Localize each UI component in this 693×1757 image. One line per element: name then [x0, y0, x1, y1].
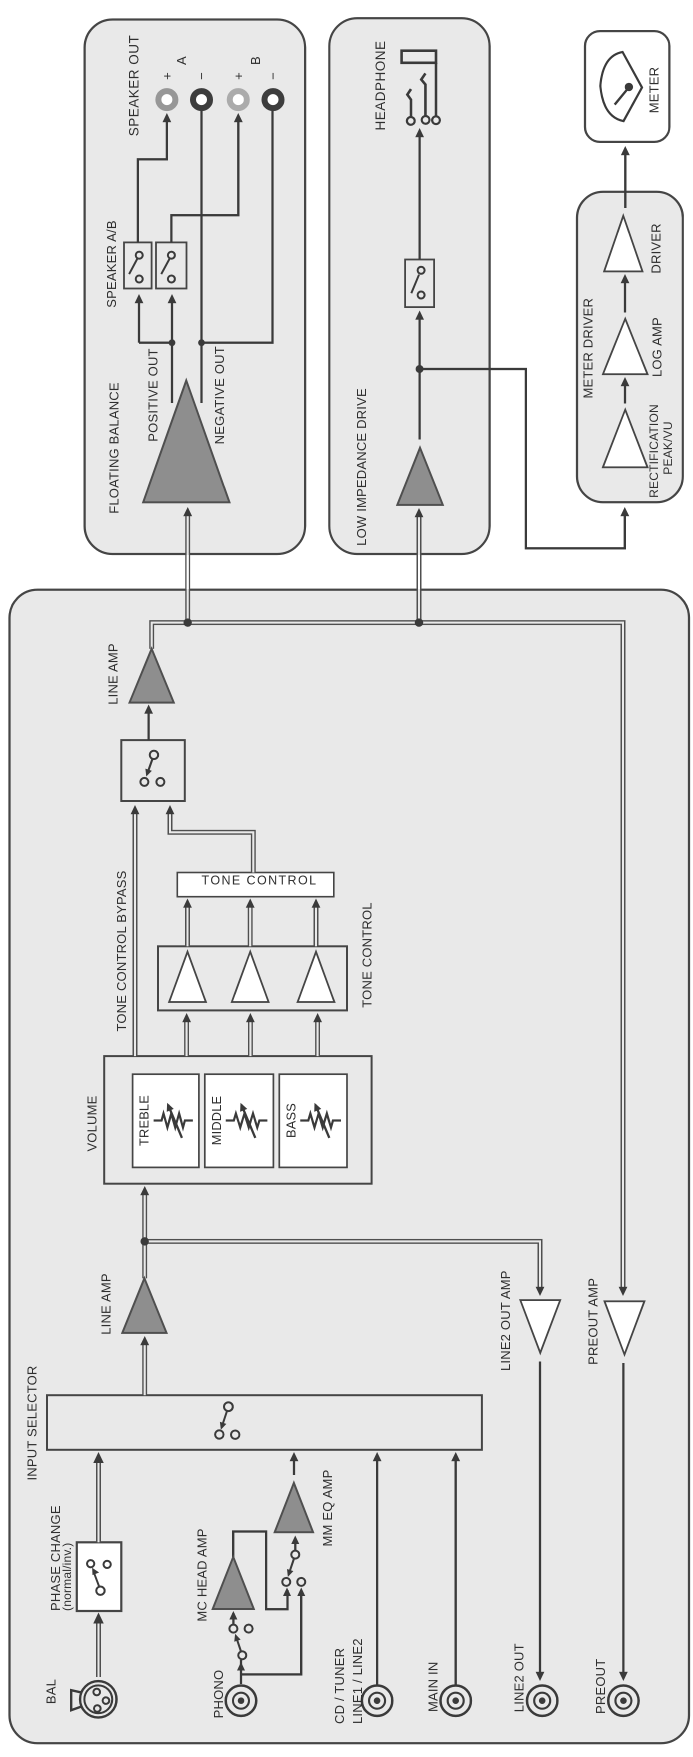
svg-text:−: − — [194, 72, 209, 80]
svg-text:VOLUME: VOLUME — [85, 1095, 100, 1151]
svg-text:POSITIVE OUT: POSITIVE OUT — [146, 348, 161, 441]
svg-text:LINE2 OUT AMP: LINE2 OUT AMP — [498, 1270, 513, 1371]
svg-text:TONE CONTROL: TONE CONTROL — [202, 874, 318, 888]
svg-text:LOG AMP: LOG AMP — [650, 317, 665, 377]
svg-text:CD / TUNER: CD / TUNER — [332, 1648, 347, 1724]
svg-text:MIDDLE: MIDDLE — [209, 1096, 224, 1146]
svg-text:LINE AMP: LINE AMP — [98, 1273, 113, 1335]
svg-text:METER DRIVER: METER DRIVER — [580, 298, 595, 399]
svg-text:LINE AMP: LINE AMP — [106, 643, 121, 705]
svg-text:TONE CONTROL: TONE CONTROL — [360, 902, 375, 1007]
svg-text:LINE2 OUT: LINE2 OUT — [511, 1643, 526, 1712]
svg-text:MAIN IN: MAIN IN — [425, 1662, 440, 1713]
svg-text:TREBLE: TREBLE — [137, 1095, 152, 1146]
svg-text:DRIVER: DRIVER — [649, 223, 664, 273]
svg-text:BASS: BASS — [283, 1103, 298, 1138]
svg-text:A: A — [174, 56, 189, 65]
svg-text:+: + — [231, 72, 246, 80]
svg-text:(normal/inv.): (normal/inv.) — [60, 1543, 74, 1611]
svg-text:NEGATIVE OUT: NEGATIVE OUT — [212, 346, 227, 444]
svg-text:LOW IMPEDANCE DRIVE: LOW IMPEDANCE DRIVE — [354, 388, 369, 546]
svg-text:LINE1 / LINE2: LINE1 / LINE2 — [350, 1638, 365, 1724]
svg-text:PREOUT AMP: PREOUT AMP — [586, 1278, 601, 1365]
svg-text:TONE CONTROL BYPASS: TONE CONTROL BYPASS — [114, 870, 129, 1031]
svg-text:B: B — [248, 56, 263, 65]
svg-text:PREOUT: PREOUT — [593, 1659, 608, 1714]
svg-text:SPEAKER OUT: SPEAKER OUT — [126, 35, 141, 137]
svg-text:MC HEAD AMP: MC HEAD AMP — [194, 1528, 209, 1621]
svg-text:INPUT SELECTOR: INPUT SELECTOR — [25, 1365, 40, 1480]
svg-text:−: − — [266, 72, 281, 80]
svg-text:SPEAKER A/B: SPEAKER A/B — [104, 220, 119, 307]
svg-text:FLOATING BALANCE: FLOATING BALANCE — [107, 382, 122, 514]
svg-text:RECTIFICATION: RECTIFICATION — [647, 404, 661, 498]
svg-text:+: + — [160, 72, 175, 80]
svg-text:BAL: BAL — [44, 1679, 59, 1704]
svg-text:PEAK/VU: PEAK/VU — [661, 421, 675, 474]
svg-text:MM EQ AMP: MM EQ AMP — [320, 1470, 335, 1547]
svg-text:HEADPHONE: HEADPHONE — [373, 40, 388, 130]
svg-text:METER: METER — [647, 67, 662, 114]
svg-text:PHONO: PHONO — [211, 1670, 226, 1719]
